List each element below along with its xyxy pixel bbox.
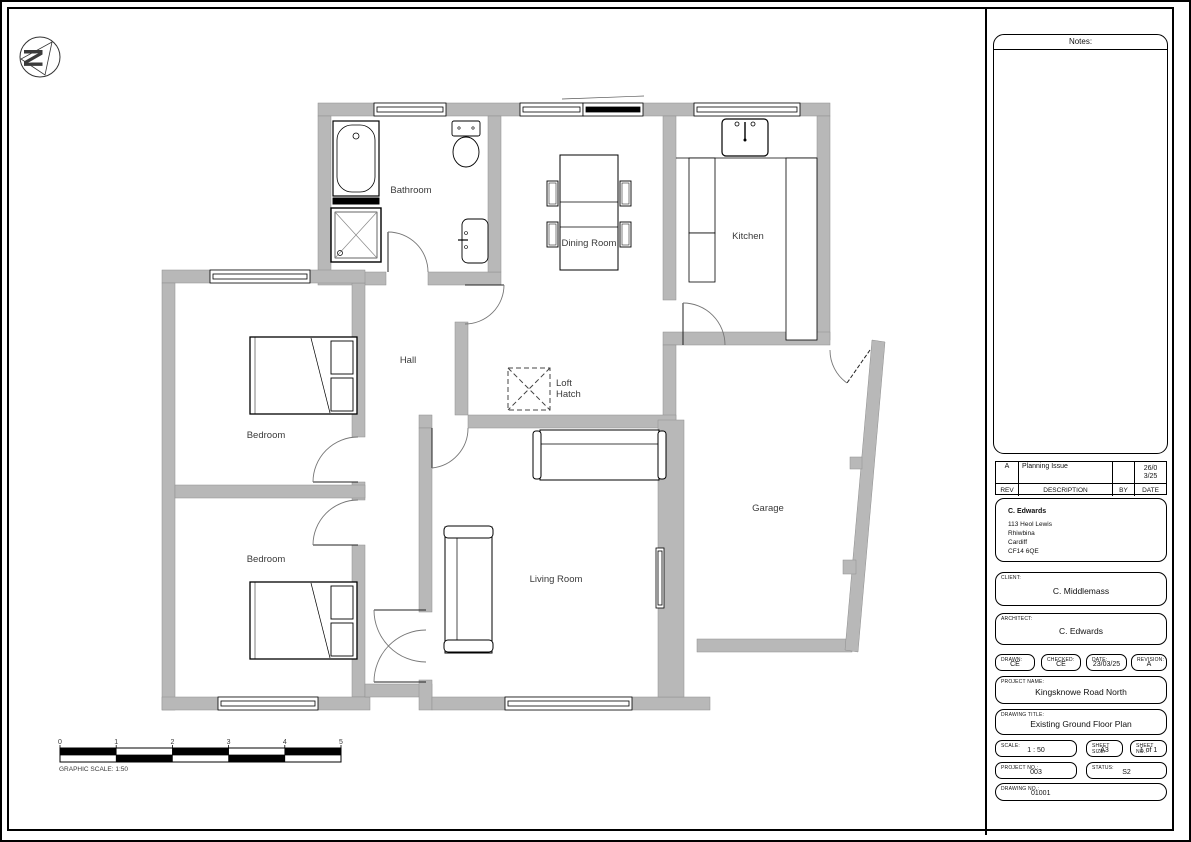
scale-tick-5: 5 [339,739,343,746]
bed-icon-bedroom2 [250,582,357,659]
garage-door-swing [830,350,847,383]
scale-value: 1 : 50 [996,741,1076,756]
status-box: STATUS: S2 [1086,762,1167,779]
north-arrow: N [18,37,60,77]
architect-info-panel: C. Edwards 113 Heol Lewis Rhiwbina Cardi… [995,498,1167,562]
room-label-kitchen: Kitchen [732,231,764,242]
garage-door-leaf [847,350,870,383]
project-name-value: Kingsknowe Road North [996,677,1166,703]
room-label-garage: Garage [752,503,784,514]
scale-tick-1: 1 [114,739,118,746]
bathroom-door-swing [388,232,428,272]
date-value: 23/03/25 [1087,655,1126,670]
notes-panel: Notes: [993,34,1168,454]
bedroom1-window [210,270,310,283]
rev-header-description: DESCRIPTION [1018,483,1112,496]
checked-box: CHECKED: CE [1041,654,1081,671]
client-box: CLIENT: C. Middlemass [995,572,1167,606]
kitchen-counter [676,158,817,340]
loft-hatch-label-line2: Hatch [556,389,581,400]
architect-address-line: Rhiwbina [1008,529,1166,538]
scale-tick-2: 2 [170,739,174,746]
dining-window-left [520,103,583,116]
chair-icon [547,181,558,206]
sheet-number-box: SHEET NO.: 1 of 1 [1130,740,1167,757]
project-name-box: PROJECT NAME: Kingsknowe Road North [995,676,1167,704]
bed-icon-bedroom1 [250,337,357,414]
status-value: S2 [1087,763,1166,778]
bedroom2-door-swing [313,500,358,545]
scale-bar-ticks: 0 1 2 3 4 5 [58,739,343,746]
date-box: DATE: 23/03/25 [1086,654,1127,671]
bedroom1-door-swing [313,437,358,482]
architect-value: C. Edwards [996,614,1166,644]
bathtub-icon [333,121,379,204]
sheet-size-box: SHEET SIZE: A3 [1086,740,1123,757]
architect-info-name: C. Edwards [1008,507,1166,516]
drawing-title-box: DRAWING TITLE: Existing Ground Floor Pla… [995,709,1167,735]
sheet-size-value: A3 [1087,741,1122,756]
living-garage-window [656,548,664,608]
architect-address-line: CF14 6QE [1008,547,1166,556]
architect-box: ARCHITECT: C. Edwards [995,613,1167,645]
dining-window-right [583,103,643,116]
revision-value: A [1132,655,1166,670]
loft-hatch [508,368,550,410]
rev-cell-date: 26/0 3/25 [1134,462,1166,483]
rev-header-by: BY [1112,483,1134,496]
drawing-number-value: 01001 [996,784,1166,800]
kitchen-window [694,103,800,116]
architect-address-line: 113 Heol Lewis [1008,520,1166,529]
toilet-icon [452,121,480,167]
revision-box: REVISION: A [1131,654,1167,671]
sofa-icon-left [444,526,493,653]
rev-date-line1: 26/0 [1144,465,1158,473]
scale-tick-0: 0 [58,739,62,746]
scale-bar-segments [60,748,341,762]
drawing-title-value: Existing Ground Floor Plan [996,710,1166,734]
living-room-window [505,697,632,710]
drawn-box: DRAWN: CE [995,654,1035,671]
room-label-bathroom: Bathroom [390,185,431,196]
rev-header-date: DATE [1134,483,1166,496]
loft-hatch-label-line1: Loft [556,378,572,389]
room-label-bedroom2: Bedroom [247,554,286,565]
scale-box: SCALE: 1 : 50 [995,740,1077,757]
chair-icon [620,181,631,206]
scale-tick-3: 3 [227,739,231,746]
sofa-icon-top [533,430,666,480]
room-label-living: Living Room [530,574,583,585]
drawing-number-box: DRAWING NO.: 01001 [995,783,1167,801]
chair-icon [620,222,631,247]
room-label-bedroom1: Bedroom [247,430,286,441]
project-number-box: PROJECT NO.: 003 [995,762,1077,779]
room-label-hall: Hall [400,355,416,366]
kitchen-sink-icon [722,119,768,156]
bathroom-window [374,103,446,116]
bathroom-sink-icon [458,219,488,263]
room-label-dining: Dining Room [562,238,617,249]
scale-bar: 0 1 2 3 4 5 GRAPHIC SCALE: 1:50 [58,739,343,773]
bedroom2-window [218,697,318,710]
rev-cell-rev: A [996,462,1018,483]
living-door-swing [432,428,468,468]
scale-tick-4: 4 [283,739,287,746]
checked-value: CE [1042,655,1080,670]
window-leader-line [562,96,644,99]
rev-cell-by [1112,462,1134,483]
architect-address-line: Cardiff [1008,538,1166,547]
scale-bar-caption: GRAPHIC SCALE: 1:50 [59,766,128,773]
revision-table: A Planning Issue 26/0 3/25 REV DESCRIPTI… [995,461,1167,495]
north-letter: N [18,48,48,68]
shower-icon [331,208,381,262]
rev-date-line2: 3/25 [1144,473,1158,481]
garage-slanted-wall [845,340,885,652]
dining-table [560,155,618,270]
notes-title: Notes: [994,35,1167,50]
rev-header-rev: REV [996,483,1018,496]
sheet-number-value: 1 of 1 [1131,741,1166,756]
hall-dining-door-swing [465,285,504,324]
drawn-value: CE [996,655,1034,670]
client-value: C. Middlemass [996,573,1166,605]
rev-cell-description: Planning Issue [1018,462,1112,483]
chair-icon [547,222,558,247]
project-number-value: 003 [996,763,1076,778]
